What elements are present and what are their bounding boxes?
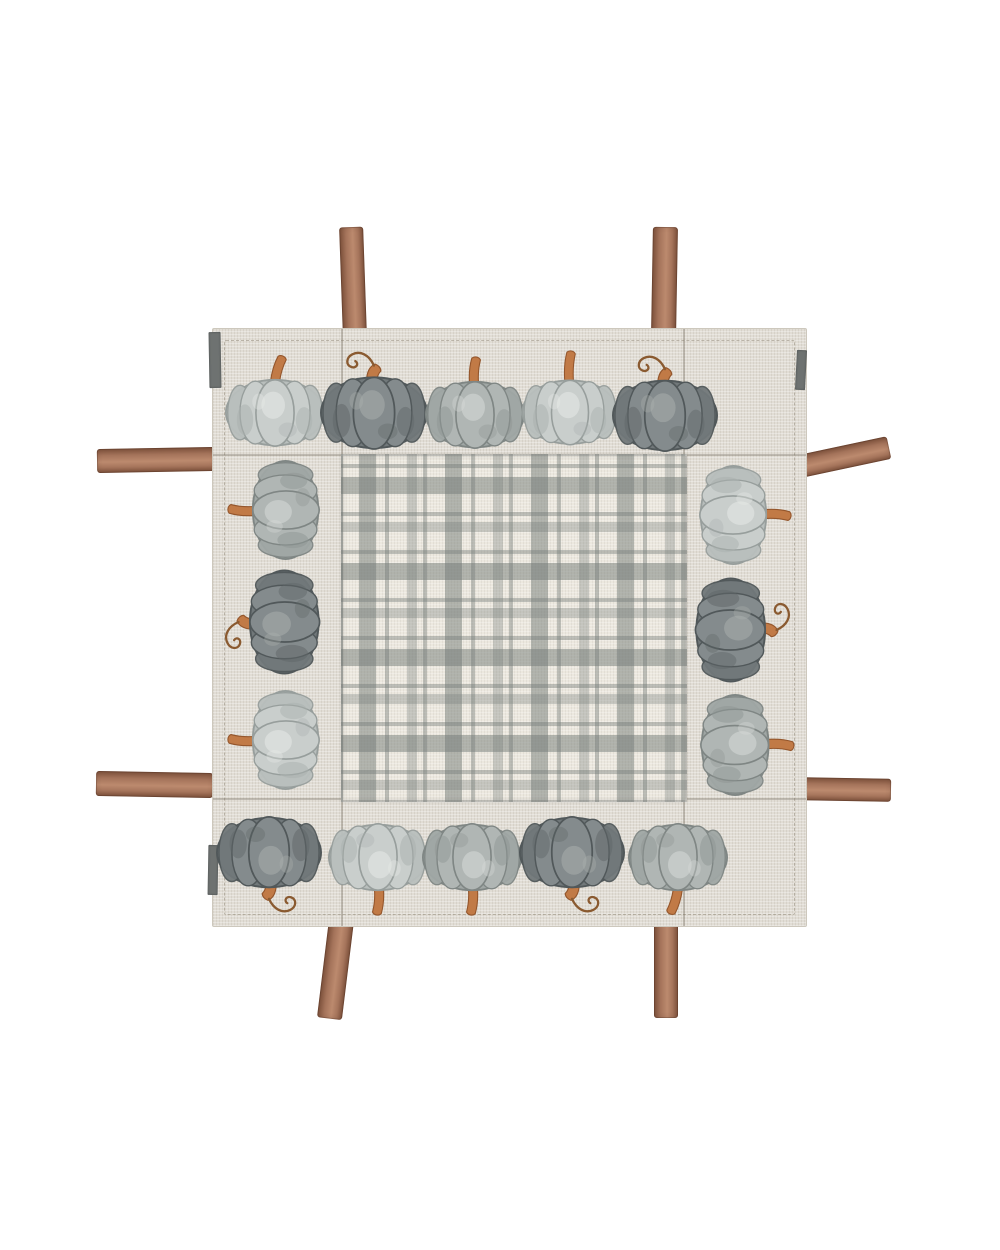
pumpkin-motif-10 [693, 571, 798, 689]
plaid-center-panel [341, 454, 687, 802]
pumpkin-motif-5 [606, 347, 725, 453]
pumpkin-motif-3 [419, 350, 531, 450]
backing-fabric-sliver [795, 350, 807, 390]
pumpkin-motif-9 [698, 459, 798, 571]
pumpkin-motif-11 [699, 688, 801, 802]
ribbon-tie-top-right [651, 227, 678, 334]
pumpkin-motif-8 [221, 684, 321, 796]
pumpkin-motif-12 [210, 815, 329, 921]
pumpkin-motif-6 [221, 454, 321, 566]
ribbon-tie-right-bottom [800, 777, 891, 802]
pumpkin-motif-15 [513, 815, 632, 921]
pumpkin-motif-14 [416, 822, 528, 922]
ribbon-tie-right-top [793, 436, 892, 478]
ribbon-tie-bottom-left [317, 918, 354, 1020]
pumpkin-motif-2 [314, 343, 435, 451]
ribbon-tie-left-bottom [96, 771, 213, 798]
pumpkin-motif-16 [622, 822, 734, 922]
ribbon-tie-top-left [339, 227, 367, 336]
product-photo [0, 0, 1000, 1250]
ribbon-tie-left-top [97, 447, 215, 473]
pumpkin-motif-7 [216, 563, 321, 681]
ribbon-tie-bottom-right [654, 920, 678, 1018]
